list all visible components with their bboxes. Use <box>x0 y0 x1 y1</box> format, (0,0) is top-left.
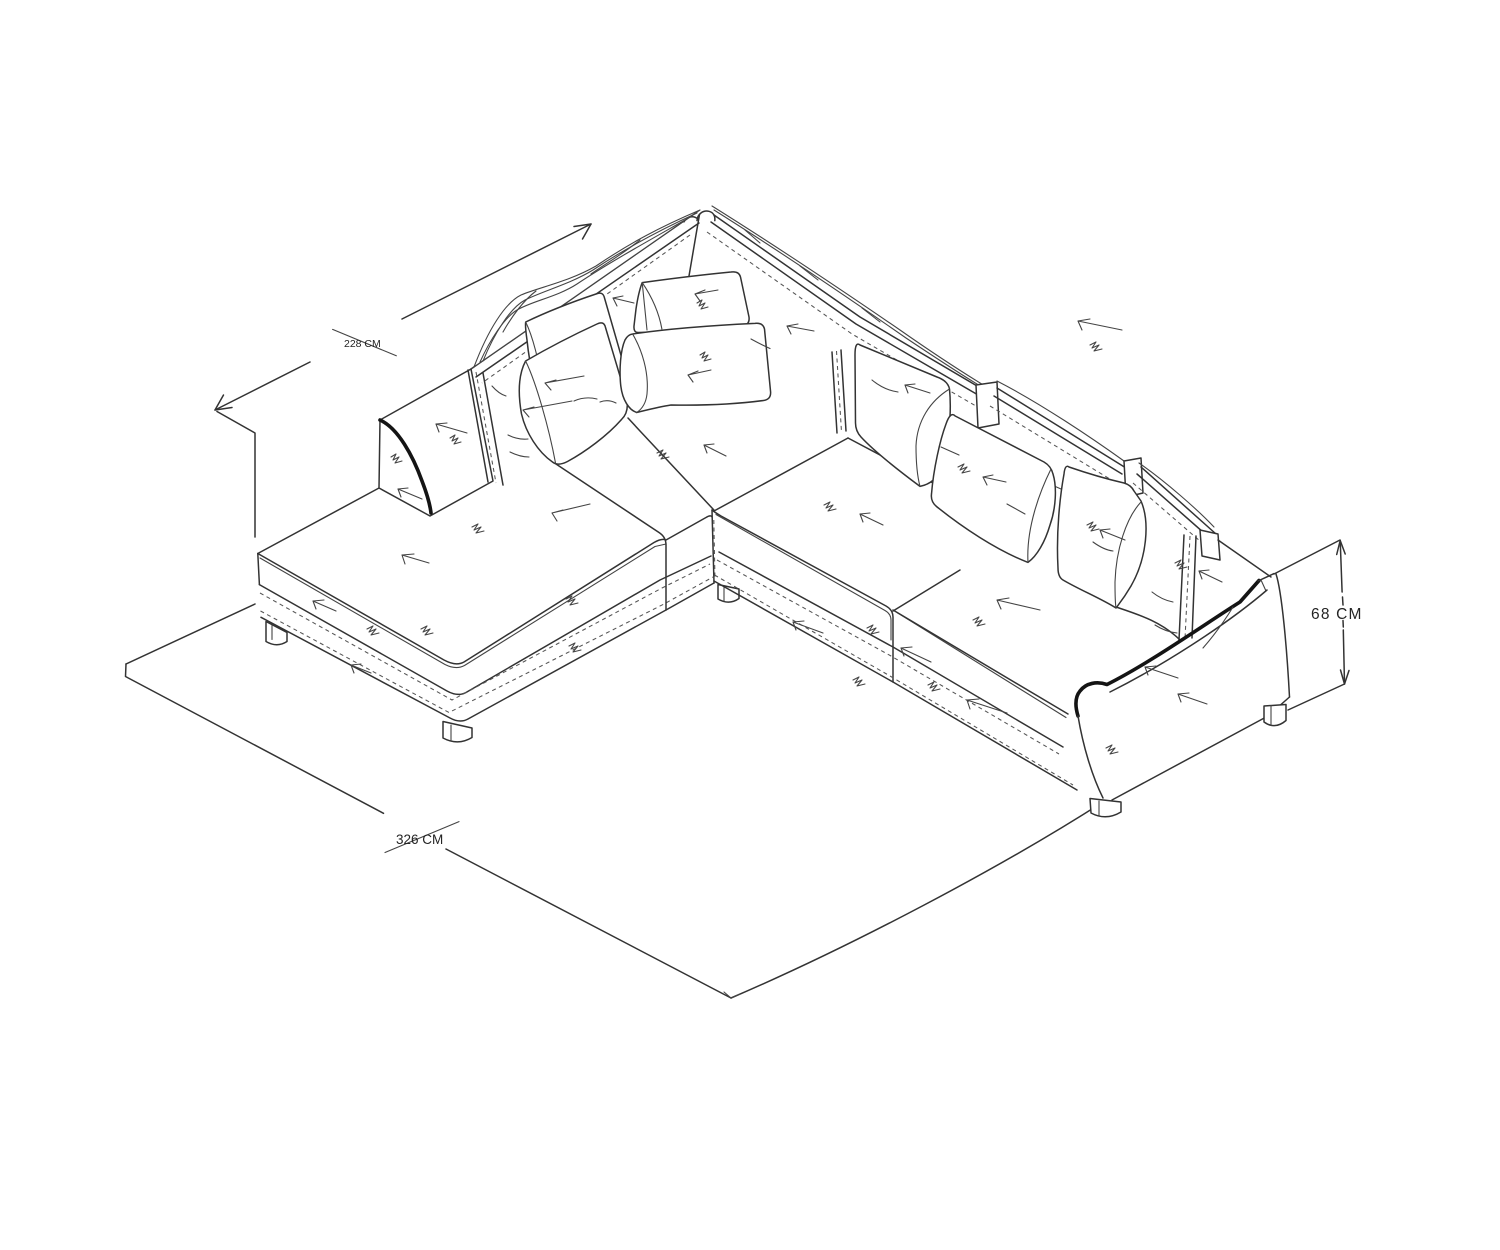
svg-text:326 CM: 326 CM <box>396 832 443 847</box>
svg-text:228 CM: 228 CM <box>344 338 381 350</box>
svg-text:68 CM: 68 CM <box>1311 606 1363 623</box>
